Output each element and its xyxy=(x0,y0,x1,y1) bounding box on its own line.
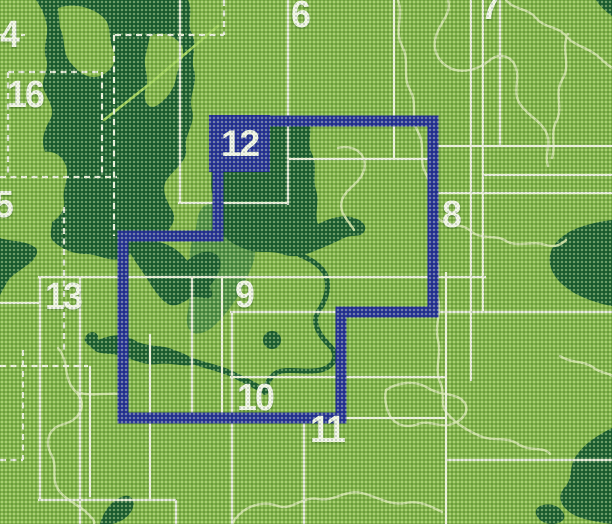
sheet-label-6: 6 xyxy=(291,0,309,34)
dark-area-northeast-corner xyxy=(596,0,612,16)
sheet-label-11: 11 xyxy=(310,411,344,449)
sheet-label-8: 8 xyxy=(442,196,460,234)
river-widening xyxy=(263,331,281,349)
sheet-label-4: 4 xyxy=(0,16,18,54)
map-artwork xyxy=(0,0,612,524)
dark-area-west-edge xyxy=(0,238,37,296)
sheet-label-13: 13 xyxy=(45,278,81,316)
sheet-label-10: 10 xyxy=(237,379,273,417)
dark-area-southeast-blob xyxy=(560,428,612,524)
index-map: 41651367891011 12 xyxy=(0,0,612,524)
sheet-label-5: 5 xyxy=(0,186,12,224)
dark-area-channel-west xyxy=(85,332,196,365)
sheet-label-7: 7 xyxy=(481,0,499,26)
sheet-label-12: 12 xyxy=(221,123,258,165)
dark-area-east-blob xyxy=(550,220,612,306)
dark-area-southeast-islet xyxy=(536,504,565,524)
river-curve xyxy=(265,255,335,392)
sheet-label-9: 9 xyxy=(235,276,253,314)
sheet-label-16: 16 xyxy=(7,76,43,114)
highlighted-sheet-box: 12 xyxy=(209,115,270,172)
